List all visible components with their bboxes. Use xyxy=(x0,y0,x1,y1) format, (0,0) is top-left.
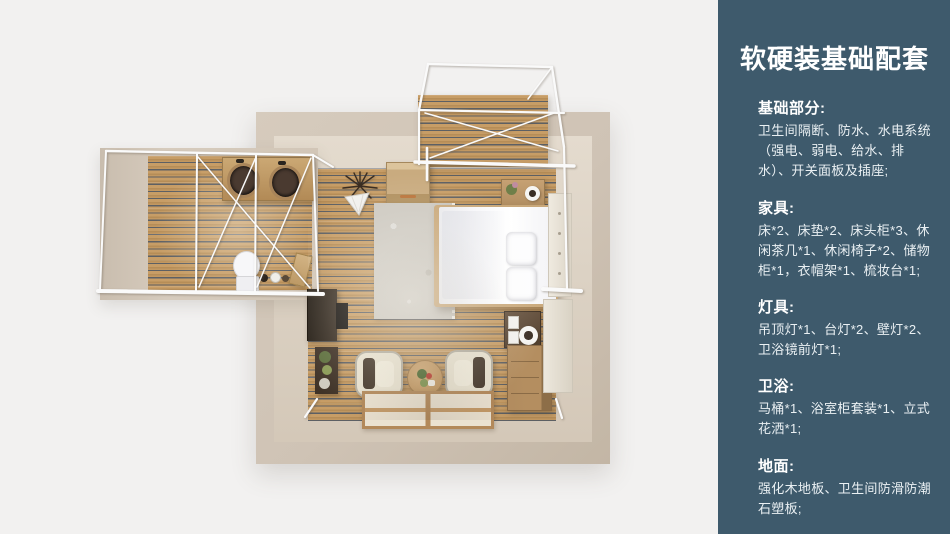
section-basics: 基础部分: 卫生间隔断、防水、水电系统（强电、弱电、给水、排水）、开关面板及插座… xyxy=(758,97,936,181)
section-furniture: 家具: 床*2、床垫*2、床头柜*3、休闲茶几*1、休闲椅子*2、储物柜*1，衣… xyxy=(758,197,936,281)
section-bathroom: 卫浴: 马桶*1、浴室柜套装*1、立式花洒*1; xyxy=(758,375,936,439)
slide: 软硬装基础配套 基础部分: 卫生间隔断、防水、水电系统（强电、弱电、给水、排水）… xyxy=(0,0,950,534)
section-lighting: 灯具: 吊顶灯*1、台灯*2、壁灯*2、卫浴镜前灯*1; xyxy=(758,296,936,360)
section-bathroom-heading: 卫浴: xyxy=(758,375,936,396)
section-bathroom-body: 马桶*1、浴室柜套装*1、立式花洒*1; xyxy=(758,399,936,439)
section-flooring-heading: 地面: xyxy=(758,455,936,476)
floorplan-render xyxy=(0,0,719,534)
section-lighting-body: 吊顶灯*1、台灯*2、壁灯*2、卫浴镜前灯*1; xyxy=(758,320,936,360)
section-flooring: 地面: 强化木地板、卫生间防滑防潮石塑板; xyxy=(758,455,936,519)
section-flooring-body: 强化木地板、卫生间防滑防潮石塑板; xyxy=(758,479,936,519)
section-furniture-heading: 家具: xyxy=(758,197,936,218)
section-basics-heading: 基础部分: xyxy=(758,97,936,118)
section-furniture-body: 床*2、床垫*2、床头柜*3、休闲茶几*1、休闲椅子*2、储物柜*1，衣帽架*1… xyxy=(758,221,936,281)
panel-title: 软硬装基础配套 xyxy=(740,44,936,75)
section-basics-body: 卫生间隔断、防水、水电系统（强电、弱电、给水、排水）、开关面板及插座; xyxy=(758,121,936,181)
section-lighting-heading: 灯具: xyxy=(758,296,936,317)
cone-lamp xyxy=(345,193,369,215)
info-panel: 软硬装基础配套 基础部分: 卫生间隔断、防水、水电系统（强电、弱电、给水、排水）… xyxy=(718,0,950,534)
steel-frame-structure xyxy=(0,0,718,534)
